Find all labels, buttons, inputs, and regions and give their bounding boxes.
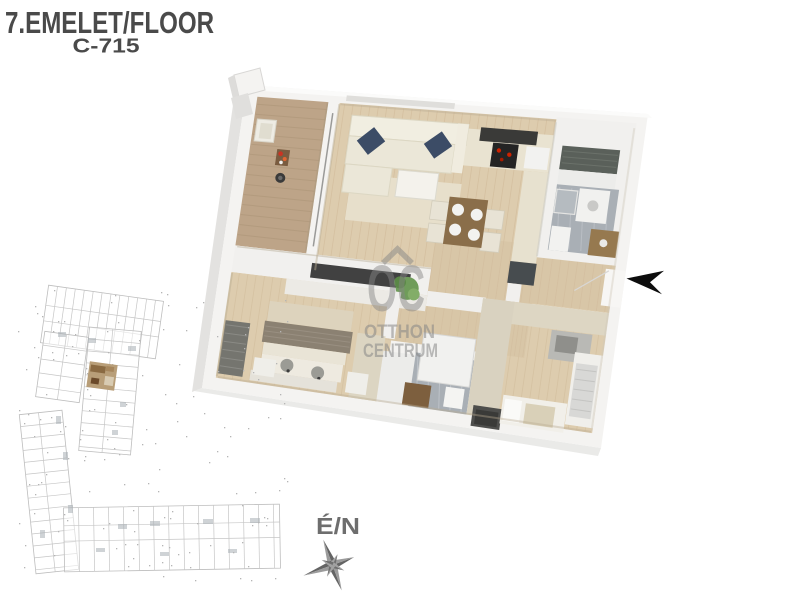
svg-text:CENTRUM: CENTRUM — [363, 341, 438, 362]
svg-text:OTTHON: OTTHON — [364, 322, 435, 343]
svg-text:É/N: É/N — [316, 512, 360, 539]
svg-text:OC: OC — [367, 251, 425, 325]
svg-text:C-715: C-715 — [73, 35, 140, 58]
